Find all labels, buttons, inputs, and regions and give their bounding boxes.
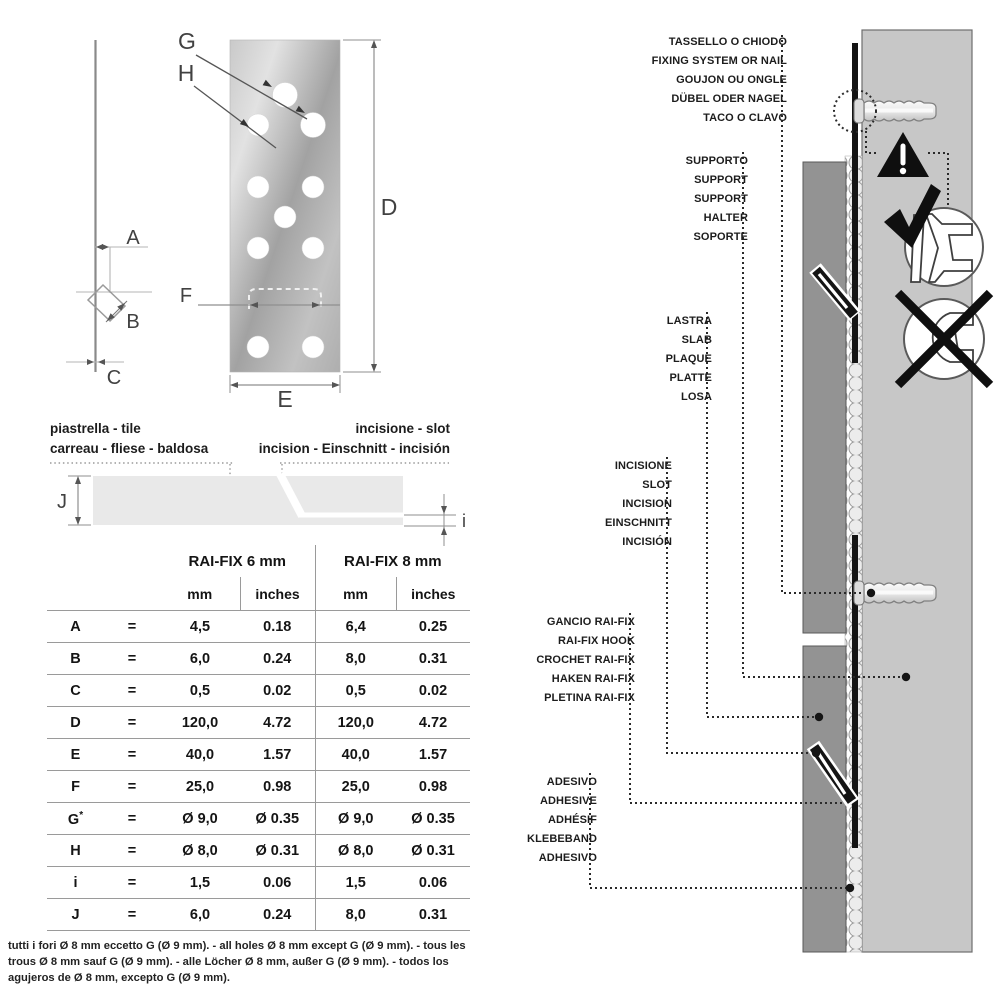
- callout-line: SOPORTE: [686, 228, 748, 247]
- slab-lower: [803, 646, 846, 952]
- value-mm8: 1,5: [315, 867, 396, 899]
- row-key: G*: [47, 803, 104, 835]
- callout-slab: LASTRA SLAB PLAQUE PLATTE LOSA: [666, 312, 712, 407]
- callout-line: ADESIVO: [527, 773, 597, 792]
- callout-line: SUPPORT: [686, 190, 748, 209]
- tile-body: [93, 476, 403, 525]
- row-key: F: [47, 771, 104, 803]
- value-in8: 4.72: [396, 707, 470, 739]
- tile-label-left: piastrella - tile carreau - fliese - bal…: [50, 419, 208, 459]
- row-key: B: [47, 643, 104, 675]
- value-mm6: 4,5: [160, 611, 240, 643]
- callout-line: HALTER: [686, 209, 748, 228]
- callout-line: INCISIONE: [605, 457, 672, 476]
- dim-label-b: B: [126, 311, 139, 333]
- value-mm6: 1,5: [160, 867, 240, 899]
- fixing-dowel-lower: [854, 581, 936, 605]
- callout-line: ADHÉSIF: [527, 811, 597, 830]
- row-key-asterisk: *: [79, 810, 83, 821]
- table-row: C = 0,5 0.02 0,5 0.02: [47, 675, 470, 707]
- callout-line: SUPPORT: [686, 171, 748, 190]
- callout-slot: INCISIONE SLOT INCISION EINSCHNITT INCIS…: [605, 457, 672, 552]
- value-in8: 0.31: [396, 643, 470, 675]
- table-row: H = Ø 8,0 Ø 0.31 Ø 8,0 Ø 0.31: [47, 835, 470, 867]
- equals-sign: =: [104, 803, 160, 835]
- callout-fixing: TASSELLO O CHIODO FIXING SYSTEM OR NAIL …: [652, 33, 787, 128]
- callout-line: INCISION: [605, 495, 672, 514]
- row-key: C: [47, 675, 104, 707]
- bent-prong-section: [88, 285, 125, 321]
- row-key: E: [47, 739, 104, 771]
- value-mm8: 6,4: [315, 611, 396, 643]
- table-row: G* = Ø 9,0 Ø 0.35 Ø 9,0 Ø 0.35: [47, 803, 470, 835]
- equals-sign: =: [104, 835, 160, 867]
- value-in8: 0.31: [396, 899, 470, 931]
- callout-line: PLATTE: [666, 369, 712, 388]
- callout-line: LOSA: [666, 388, 712, 407]
- row-key-letter: G: [68, 811, 79, 827]
- value-mm8: Ø 8,0: [315, 835, 396, 867]
- col-header-inches: inches: [240, 577, 315, 611]
- callout-line: LASTRA: [666, 312, 712, 331]
- value-in8: 0.06: [396, 867, 470, 899]
- slot-label-right: incisione - slot incision - Einschnitt -…: [240, 419, 450, 459]
- callout-adhesive: ADESIVO ADHESIVE ADHÉSIF KLEBEBAND ADHES…: [527, 773, 597, 868]
- callout-line: SUPPORTO: [686, 152, 748, 171]
- equals-sign: =: [104, 899, 160, 931]
- callout-line: TASSELLO O CHIODO: [652, 33, 787, 52]
- page: A B C: [0, 0, 1000, 1000]
- callout-line: HAKEN RAI-FIX: [536, 670, 635, 689]
- value-in6: 4.72: [240, 707, 315, 739]
- hook-side-view: A B C: [66, 40, 152, 389]
- value-mm6: 6,0: [160, 899, 240, 931]
- dim-label-d: D: [381, 194, 398, 220]
- value-mm6: 120,0: [160, 707, 240, 739]
- callout-line: PLETINA RAI-FIX: [536, 689, 635, 708]
- table-group-8mm: RAI-FIX 8 mm: [315, 545, 470, 577]
- slab-upper: [803, 162, 846, 633]
- dim-label-j: J: [57, 491, 67, 513]
- table-row: J = 6,0 0.24 8,0 0.31: [47, 899, 470, 931]
- value-mm8: 8,0: [315, 643, 396, 675]
- callout-line: CROCHET RAI-FIX: [536, 651, 635, 670]
- value-mm8: 120,0: [315, 707, 396, 739]
- value-in6: Ø 0.31: [240, 835, 315, 867]
- equals-sign: =: [104, 707, 160, 739]
- dim-label-h: H: [178, 60, 195, 86]
- dim-label-f: F: [180, 285, 192, 307]
- row-key: J: [47, 899, 104, 931]
- table-subheader-row: mm inches mm inches: [47, 577, 470, 611]
- col-header-mm: mm: [160, 577, 240, 611]
- value-mm8: 0,5: [315, 675, 396, 707]
- value-mm8: 25,0: [315, 771, 396, 803]
- value-in8: Ø 0.31: [396, 835, 470, 867]
- table-group-header-row: RAI-FIX 6 mm RAI-FIX 8 mm: [47, 545, 470, 577]
- callout-hook: GANCIO RAI-FIX RAI-FIX HOOK CROCHET RAI-…: [536, 613, 635, 708]
- callout-line: DÜBEL ODER NAGEL: [652, 90, 787, 109]
- callout-line: ADHESIVO: [527, 849, 597, 868]
- value-in8: Ø 0.35: [396, 803, 470, 835]
- col-header-mm: mm: [315, 577, 396, 611]
- value-in6: 0.02: [240, 675, 315, 707]
- callout-line: SLAB: [666, 331, 712, 350]
- equals-sign: =: [104, 771, 160, 803]
- value-mm8: 8,0: [315, 899, 396, 931]
- dim-label-e: E: [277, 386, 292, 412]
- table-group-6mm: RAI-FIX 6 mm: [160, 545, 315, 577]
- value-mm8: Ø 9,0: [315, 803, 396, 835]
- equals-sign: =: [104, 611, 160, 643]
- fixing-dowel-upper: [854, 99, 936, 123]
- equals-sign: =: [104, 643, 160, 675]
- callout-line: FIXING SYSTEM OR NAIL: [652, 52, 787, 71]
- value-mm6: 6,0: [160, 643, 240, 675]
- equals-sign: =: [104, 739, 160, 771]
- callout-line: KLEBEBAND: [527, 830, 597, 849]
- value-in6: 0.18: [240, 611, 315, 643]
- callout-line: ADHESIVE: [527, 792, 597, 811]
- tile-label-line: piastrella - tile: [50, 419, 208, 439]
- equals-sign: =: [104, 867, 160, 899]
- callout-support: SUPPORTO SUPPORT SUPPORT HALTER SOPORTE: [686, 152, 748, 247]
- table-footnote: tutti i fori Ø 8 mm eccetto G (Ø 9 mm). …: [8, 938, 490, 986]
- value-in6: Ø 0.35: [240, 803, 315, 835]
- dim-label-g: G: [178, 28, 196, 54]
- slot-label-line: incisione - slot: [240, 419, 450, 439]
- table-row: D = 120,0 4.72 120,0 4.72: [47, 707, 470, 739]
- callout-line: GANCIO RAI-FIX: [536, 613, 635, 632]
- dim-label-c: C: [107, 367, 121, 389]
- equals-sign: =: [104, 675, 160, 707]
- value-in6: 0.98: [240, 771, 315, 803]
- col-header-inches: inches: [396, 577, 470, 611]
- callout-line: SLOT: [605, 476, 672, 495]
- callout-line: TACO O CLAVO: [652, 109, 787, 128]
- row-key: H: [47, 835, 104, 867]
- callout-line: PLAQUE: [666, 350, 712, 369]
- table-row: i = 1,5 0.06 1,5 0.06: [47, 867, 470, 899]
- plate-front-view: G H D E F: [178, 28, 398, 412]
- table-row: B = 6,0 0.24 8,0 0.31: [47, 643, 470, 675]
- value-in8: 1.57: [396, 739, 470, 771]
- tile-cross-section: J i: [50, 463, 466, 546]
- row-key: i: [47, 867, 104, 899]
- table-row: A = 4,5 0.18 6,4 0.25: [47, 611, 470, 643]
- value-mm6: 40,0: [160, 739, 240, 771]
- value-in8: 0.02: [396, 675, 470, 707]
- value-in6: 0.24: [240, 643, 315, 675]
- tile-label-line: carreau - fliese - baldosa: [50, 439, 208, 459]
- callout-line: GOUJON OU ONGLE: [652, 71, 787, 90]
- value-in6: 1.57: [240, 739, 315, 771]
- value-in6: 0.06: [240, 867, 315, 899]
- value-mm6: Ø 9,0: [160, 803, 240, 835]
- value-in6: 0.24: [240, 899, 315, 931]
- dimension-table: RAI-FIX 6 mm RAI-FIX 8 mm mm inches mm i…: [47, 545, 470, 931]
- value-in8: 0.25: [396, 611, 470, 643]
- table-row: F = 25,0 0.98 25,0 0.98: [47, 771, 470, 803]
- value-mm6: 0,5: [160, 675, 240, 707]
- row-key: A: [47, 611, 104, 643]
- dim-label-a: A: [126, 227, 140, 249]
- callout-line: INCISIÓN: [605, 533, 672, 552]
- slot-label-line: incision - Einschnitt - incisión: [240, 439, 450, 459]
- table-row: E = 40,0 1.57 40,0 1.57: [47, 739, 470, 771]
- row-key: D: [47, 707, 104, 739]
- value-in8: 0.98: [396, 771, 470, 803]
- value-mm8: 40,0: [315, 739, 396, 771]
- callout-line: EINSCHNITT: [605, 514, 672, 533]
- dim-label-i: i: [462, 511, 466, 531]
- value-mm6: Ø 8,0: [160, 835, 240, 867]
- callout-line: RAI-FIX HOOK: [536, 632, 635, 651]
- value-mm6: 25,0: [160, 771, 240, 803]
